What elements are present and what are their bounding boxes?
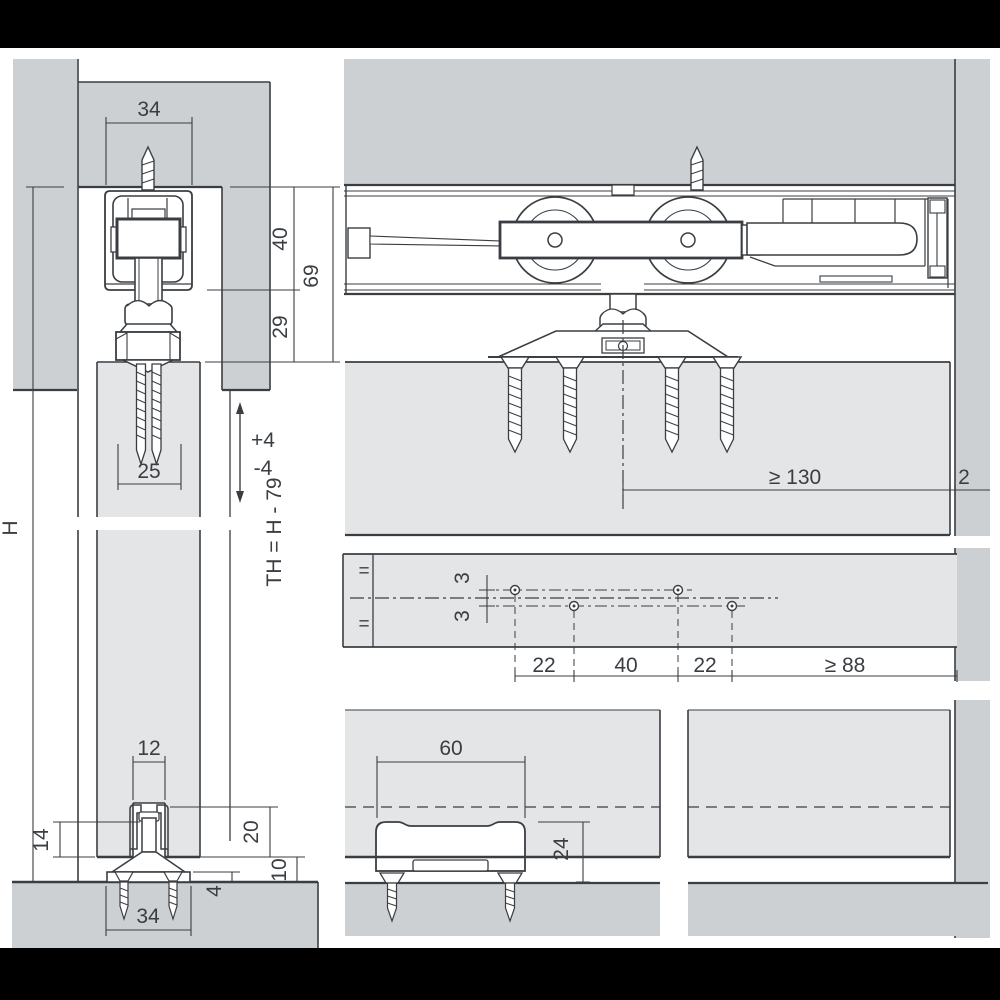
door-screw-front-1 <box>137 364 146 464</box>
bottom-black-bar <box>0 948 1000 1000</box>
carriage-hole-left <box>548 233 562 247</box>
top-black-bar <box>0 0 1000 48</box>
dim-hole-offset-below: 3 <box>451 610 474 622</box>
floor-guide-side-view: 60 24 <box>345 710 988 936</box>
drill-hole-1-center <box>514 589 517 592</box>
dim-hole-pitch-b: 40 <box>614 654 637 677</box>
dim-groove-depth: 20 <box>240 820 263 843</box>
dim-track-width: 34 <box>137 98 161 121</box>
damper-cylinder <box>747 223 917 255</box>
pitch-dimension-line <box>515 670 957 682</box>
door-panel-side-right <box>688 710 950 857</box>
dim-door-height-formula: TH = H - 79 <box>263 477 286 586</box>
side-wall-strip-top <box>955 59 990 536</box>
dim-roller-height: 40 <box>269 227 292 250</box>
equal-mark-bottom: = <box>358 614 369 635</box>
door-screw-front-2 <box>152 364 161 464</box>
dim-base-plate-width: 34 <box>136 905 160 928</box>
dim-door-height: H <box>0 520 22 535</box>
dim-hole-pitch-c: 22 <box>693 654 716 677</box>
dim-min-side-clearance: ≥ 130 <box>769 466 821 489</box>
guide-block-insert <box>413 860 488 871</box>
dim-assembly-height: 69 <box>300 264 323 287</box>
drill-hole-3-center <box>677 589 680 592</box>
bolt-head-in-rail <box>612 185 634 195</box>
dim-hole-pitch-a: 22 <box>532 654 555 677</box>
adjustment-nut-front <box>125 304 172 326</box>
ceiling-return-panel <box>222 82 270 390</box>
guide-pin-stem <box>142 818 156 852</box>
drilling-template-view: = = 3 3 22 40 22 ≥ 88 <box>343 554 957 682</box>
ceiling-panel-side <box>344 59 955 185</box>
technical-drawing-page: 34 40 69 29 +4 -4 25 H TH = H - 79 12 14… <box>0 0 1000 1000</box>
door-panel-side <box>345 362 950 535</box>
template-band <box>343 554 957 647</box>
dim-hole-offset-above: 3 <box>451 572 474 584</box>
carriage-hole-right <box>681 233 695 247</box>
dim-guide-profile-height: 14 <box>30 828 53 852</box>
dim-height-adjust-down: -4 <box>254 457 273 480</box>
dim-guide-length: 60 <box>439 737 462 760</box>
guide-screw-heads <box>380 873 522 883</box>
wall-panel <box>13 59 77 390</box>
damper-lower-rail <box>820 276 892 282</box>
dim-floor-clearance: 10 <box>268 858 291 881</box>
drill-hole-2-center <box>573 605 576 608</box>
dim-base-plate-thickness: 4 <box>203 885 226 897</box>
dim-wall-gap: 2 <box>958 466 970 489</box>
end-bracket-bottom-block <box>930 266 945 277</box>
front-section-view: 34 40 69 29 +4 -4 25 H TH = H - 79 12 14… <box>0 59 340 948</box>
bolt-flange-front <box>120 324 177 332</box>
door-panel-front <box>97 362 200 857</box>
dim-hanger-height: 29 <box>269 315 292 338</box>
carriage-plate-front <box>117 219 180 258</box>
side-wall-strip-mid <box>955 548 990 681</box>
floor-slab-right <box>688 883 988 936</box>
sliding-door-hardware-diagram: 34 40 69 29 +4 -4 25 H TH = H - 79 12 14… <box>0 0 1000 1000</box>
track-end-cap <box>348 228 370 258</box>
dim-groove-width: 12 <box>137 737 160 760</box>
dim-min-edge-distance: ≥ 88 <box>825 654 866 677</box>
carriage-bar-side <box>500 222 742 258</box>
dim-guide-total-height: 24 <box>550 837 573 861</box>
drill-hole-4-center <box>731 605 734 608</box>
dim-height-adjust-up: +4 <box>251 429 275 452</box>
floor-panel-front <box>12 882 318 948</box>
dim-fixing-screw-length: 25 <box>137 460 160 483</box>
end-bracket-top-block <box>930 200 945 213</box>
equal-mark-top: = <box>358 561 369 582</box>
